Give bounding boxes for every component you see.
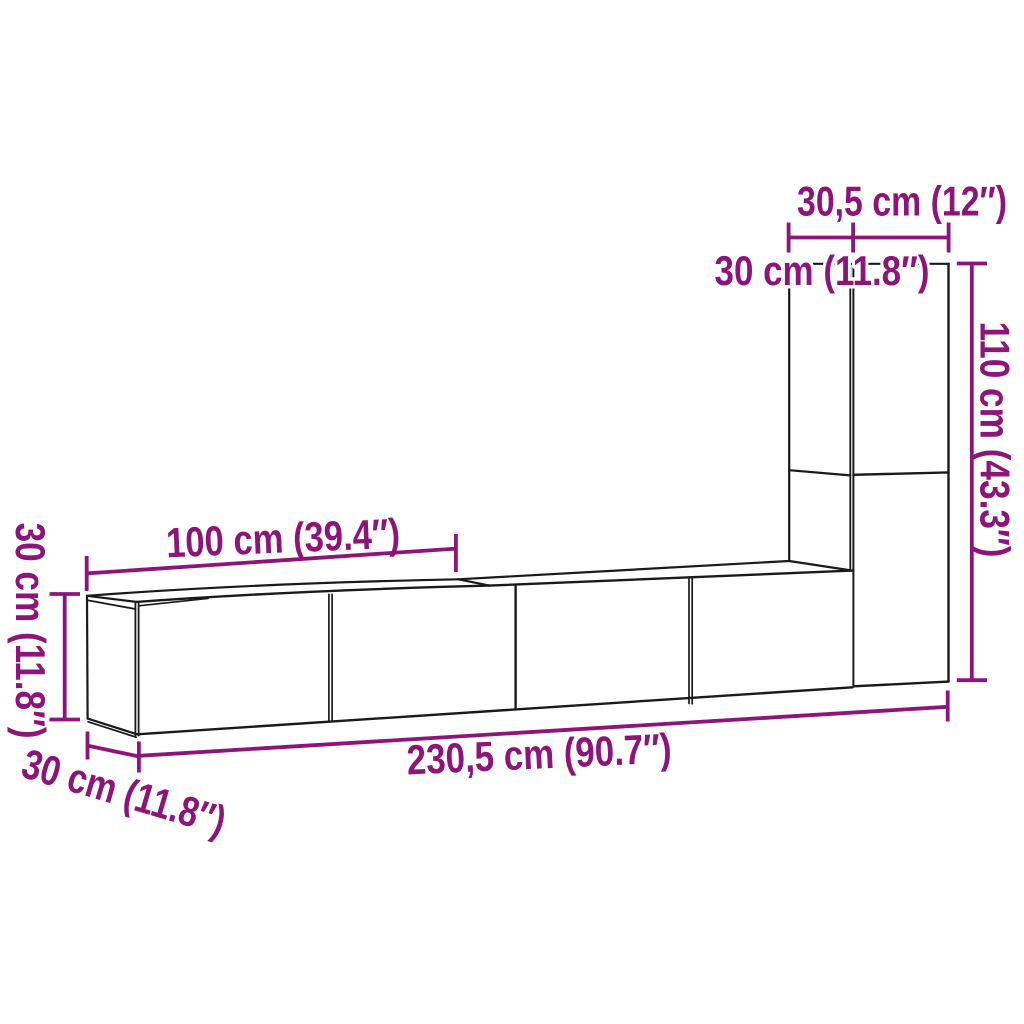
svg-text:110 cm (43.3″): 110 cm (43.3″) [972,322,1019,558]
svg-text:30,5 cm (12″): 30,5 cm (12″) [797,178,1007,225]
svg-text:30 cm (11.8″): 30 cm (11.8″) [715,247,930,294]
svg-text:30 cm (11.8″): 30 cm (11.8″) [7,523,54,739]
svg-text:100 cm (39.4″): 100 cm (39.4″) [165,510,401,567]
